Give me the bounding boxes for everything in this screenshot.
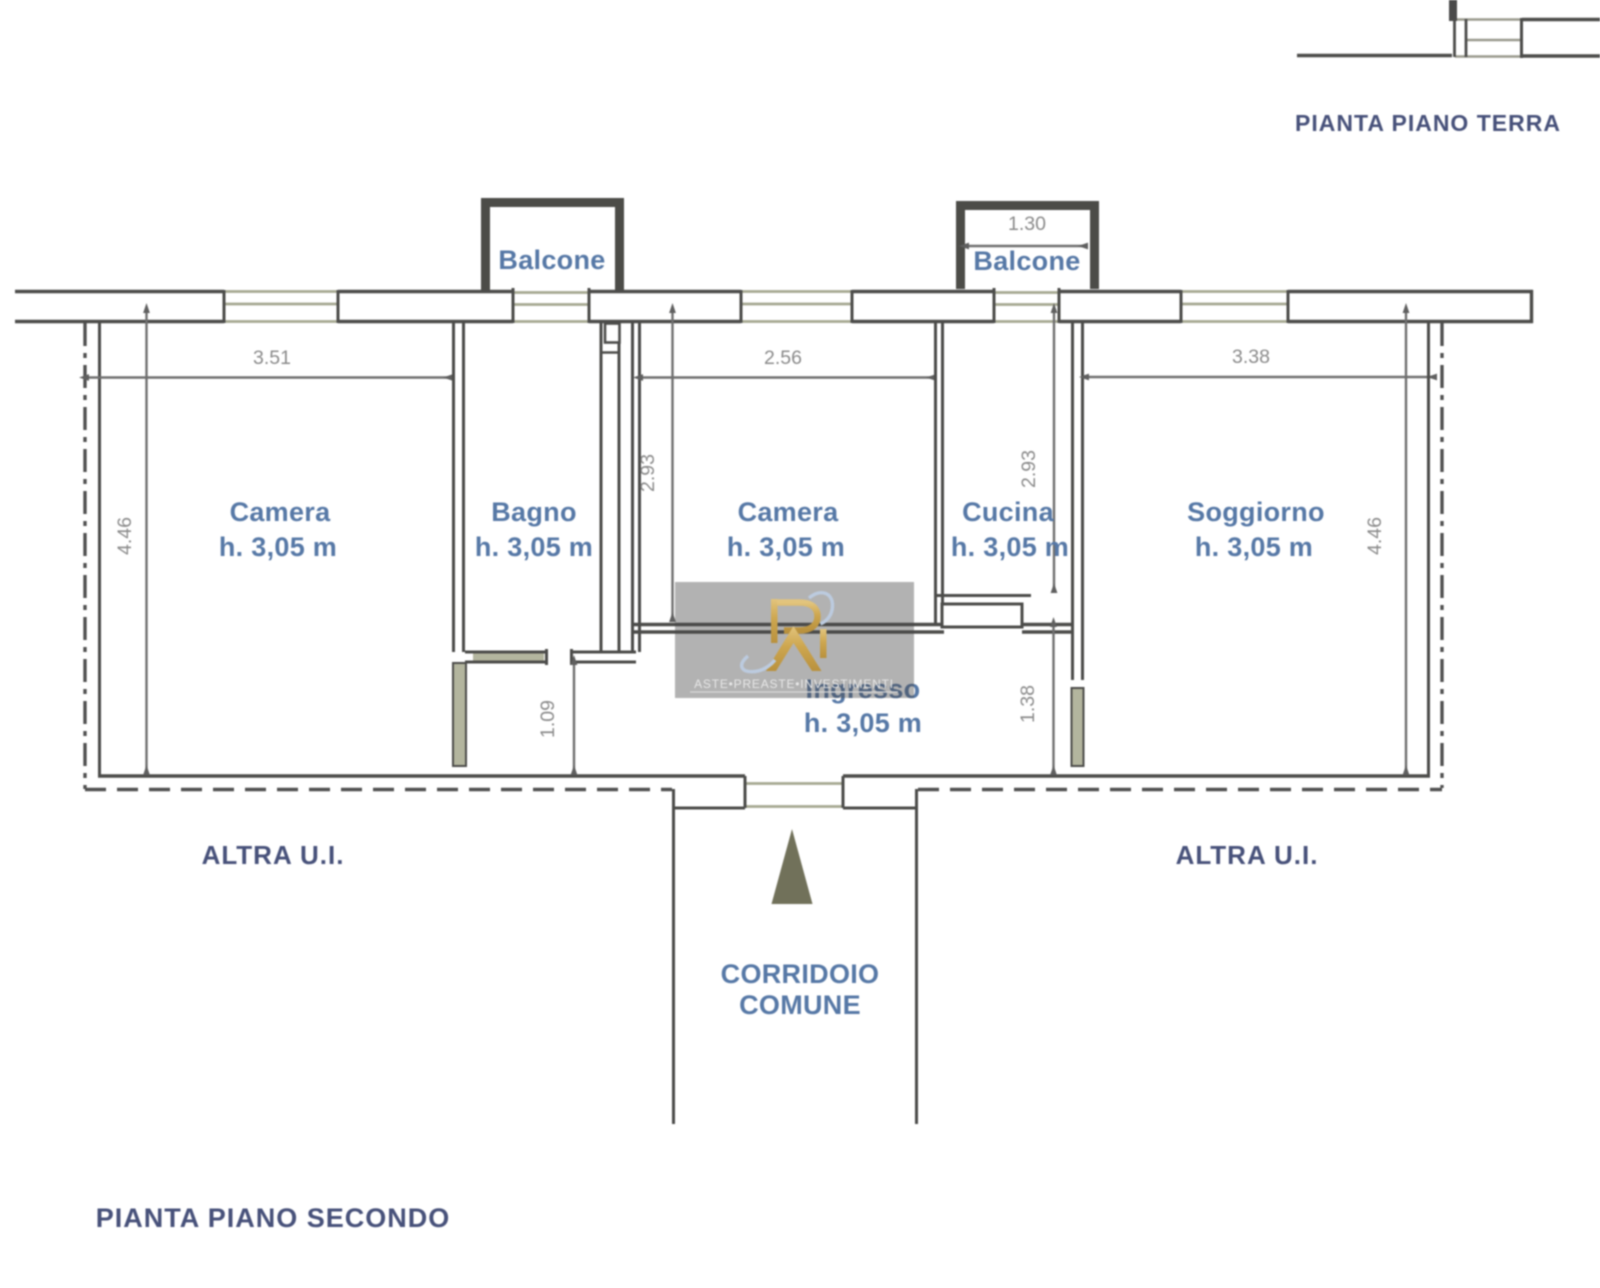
svg-text:h. 3,05 m: h. 3,05 m [475,532,593,562]
svg-text:Cucina: Cucina [962,497,1055,527]
svg-text:Bagno: Bagno [491,497,577,527]
svg-text:ALTRA U.I.: ALTRA U.I. [1176,840,1319,870]
svg-text:1.30: 1.30 [1008,213,1046,235]
svg-text:COMUNE: COMUNE [739,990,861,1020]
svg-text:ALTRA U.I.: ALTRA U.I. [202,840,345,870]
svg-text:2.56: 2.56 [764,347,802,369]
svg-text:3.51: 3.51 [253,347,291,369]
svg-text:4.46: 4.46 [114,517,136,555]
svg-text:4.46: 4.46 [1364,517,1386,555]
svg-text:PIANTA PIANO SECONDO: PIANTA PIANO SECONDO [96,1203,451,1233]
svg-text:h. 3,05 m: h. 3,05 m [1195,532,1313,562]
svg-text:Camera: Camera [230,497,332,527]
svg-text:1.38: 1.38 [1017,685,1039,723]
svg-text:PIANTA PIANO TERRA: PIANTA PIANO TERRA [1295,110,1561,136]
svg-text:h. 3,05 m: h. 3,05 m [219,532,337,562]
svg-text:Camera: Camera [738,497,840,527]
svg-text:1.09: 1.09 [537,700,559,738]
svg-text:CORRIDOIO: CORRIDOIO [721,959,880,989]
svg-text:2.93: 2.93 [1018,450,1040,488]
svg-text:Soggiorno: Soggiorno [1187,497,1325,527]
svg-text:3.38: 3.38 [1232,346,1270,368]
svg-text:h. 3,05 m: h. 3,05 m [804,708,922,738]
svg-text:h. 3,05 m: h. 3,05 m [727,532,845,562]
svg-text:2.93: 2.93 [637,454,659,492]
svg-text:Balcone: Balcone [973,246,1080,276]
svg-text:ASTE•PREASTE•INVESTIMENTI: ASTE•PREASTE•INVESTIMENTI [694,677,894,691]
svg-text:Balcone: Balcone [498,245,605,275]
svg-text:h. 3,05 m: h. 3,05 m [951,532,1069,562]
